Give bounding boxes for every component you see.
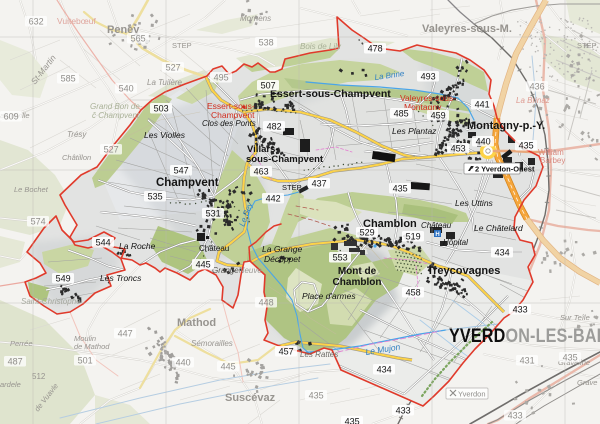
svg-text:Château: Château	[199, 244, 229, 253]
svg-text:Place d'armes: Place d'armes	[302, 291, 356, 301]
svg-text:540: 540	[119, 83, 134, 93]
svg-text:Mont de: Mont de	[338, 266, 377, 277]
svg-text:Château: Château	[421, 221, 452, 230]
svg-text:485: 485	[394, 108, 409, 118]
svg-text:553: 553	[333, 252, 348, 262]
svg-text:Les Uttins: Les Uttins	[455, 198, 494, 208]
svg-text:Les Plantaz: Les Plantaz	[392, 126, 437, 136]
svg-text:431: 431	[520, 355, 535, 365]
svg-text:435: 435	[345, 416, 360, 424]
svg-text:574: 574	[31, 216, 46, 226]
svg-text:447: 447	[118, 328, 133, 338]
svg-text:Sur Teîle: Sur Teîle	[560, 313, 590, 322]
svg-text:Chamblon: Chamblon	[333, 277, 382, 288]
svg-text:Barbey: Barbey	[540, 156, 565, 165]
svg-text:435: 435	[309, 390, 324, 400]
svg-text:437: 437	[312, 178, 327, 188]
svg-text:Le Châtelard: Le Châtelard	[474, 223, 523, 233]
svg-text:463: 463	[254, 166, 269, 176]
svg-text:2 Yverdon-Ouest: 2 Yverdon-Ouest	[475, 165, 535, 174]
svg-text:538: 538	[259, 37, 274, 47]
svg-text:Les Violles: Les Violles	[144, 130, 186, 140]
svg-text:Valeyres-sous-M.: Valeyres-sous-M.	[422, 23, 512, 35]
svg-text:519: 519	[406, 231, 421, 241]
svg-text:Suscévaz: Suscévaz	[225, 392, 276, 404]
svg-text:547: 547	[174, 165, 189, 175]
svg-text:493: 493	[421, 71, 436, 81]
svg-text:ardele: ardele	[0, 380, 21, 389]
svg-text:Essert-sous-Champvent: Essert-sous-Champvent	[270, 88, 391, 100]
svg-text:445: 445	[196, 259, 211, 269]
svg-text:442: 442	[266, 193, 281, 203]
svg-text:La Brinaz: La Brinaz	[516, 96, 550, 105]
svg-text:549: 549	[56, 273, 71, 283]
svg-text:453: 453	[451, 143, 466, 153]
svg-text:565: 565	[131, 33, 146, 43]
svg-text:503: 503	[154, 103, 169, 113]
svg-text:436: 436	[530, 81, 545, 91]
svg-text:STEP: STEP	[172, 41, 192, 50]
svg-text:434: 434	[495, 247, 510, 257]
svg-text:Sémorailles: Sémorailles	[191, 339, 233, 348]
svg-text:478: 478	[368, 43, 383, 53]
svg-text:585: 585	[61, 73, 76, 83]
svg-text:433: 433	[508, 410, 523, 420]
svg-text:445: 445	[221, 361, 236, 371]
svg-text:440: 440	[176, 357, 191, 367]
svg-text:Mornens: Mornens	[240, 14, 271, 23]
svg-text:Décoppet: Décoppet	[264, 254, 301, 264]
svg-text:482: 482	[267, 121, 282, 131]
svg-text:501: 501	[78, 355, 93, 365]
svg-text:Mathod: Mathod	[177, 317, 216, 329]
svg-text:STEP: STEP	[282, 183, 302, 192]
svg-text:448: 448	[259, 297, 274, 307]
svg-text:433: 433	[513, 304, 528, 314]
svg-text:Bois de Lily: Bois de Lily	[300, 42, 342, 51]
svg-text:Clos des Ponts: Clos des Ponts	[202, 119, 256, 128]
svg-text:H: H	[435, 232, 439, 238]
svg-text:La Tuilère: La Tuilère	[147, 78, 183, 87]
svg-text:434: 434	[377, 364, 392, 374]
svg-text:Vuitebœuf: Vuitebœuf	[57, 16, 97, 26]
svg-text:Trésy: Trésy	[67, 130, 87, 139]
svg-text:Châtillon: Châtillon	[62, 153, 91, 162]
svg-text:Saint-Christophe: Saint-Christophe	[21, 297, 81, 306]
svg-text:Perrée: Perrée	[10, 339, 33, 348]
svg-text:544: 544	[96, 237, 111, 247]
svg-text:535: 535	[148, 191, 163, 201]
svg-text:440: 440	[476, 136, 491, 146]
svg-text:Les Troncs: Les Troncs	[100, 273, 142, 283]
svg-text:Grave: Grave	[577, 378, 597, 387]
svg-text:STEP: STEP	[577, 41, 597, 50]
svg-text:Montagny-p.-Y.: Montagny-p.-Y.	[467, 120, 545, 132]
svg-text:La Grange: La Grange	[262, 244, 302, 254]
svg-text:495: 495	[214, 72, 229, 82]
svg-text:512: 512	[32, 372, 46, 381]
svg-text:sous-Champvent: sous-Champvent	[246, 154, 324, 165]
svg-text:435: 435	[563, 352, 578, 362]
svg-text:Grand Bon de-: Grand Bon de-	[90, 102, 143, 111]
svg-text:La Roche: La Roche	[119, 241, 156, 251]
svg-text:435: 435	[519, 140, 534, 150]
svg-text:-Neuve: -Neuve	[236, 266, 262, 275]
svg-text:527: 527	[104, 144, 119, 154]
svg-text:458: 458	[406, 287, 421, 297]
svg-text:Hôpital: Hôpital	[443, 238, 468, 247]
svg-text:529: 529	[360, 227, 375, 237]
svg-text:457: 457	[279, 346, 294, 356]
svg-text:Yverdon: Yverdon	[458, 390, 486, 399]
svg-text:507: 507	[261, 80, 276, 90]
svg-text:YVERDON-LES-BAI: YVERDON-LES-BAI	[449, 325, 600, 347]
svg-text:531: 531	[206, 208, 221, 218]
svg-text:Le Bochet: Le Bochet	[14, 185, 49, 194]
svg-text:527: 527	[166, 62, 181, 72]
svg-text:Champvent: Champvent	[156, 177, 219, 189]
svg-text:459: 459	[431, 110, 446, 120]
svg-text:Treycovagnes: Treycovagnes	[427, 265, 500, 277]
svg-text:435: 435	[393, 183, 408, 193]
svg-text:433: 433	[396, 405, 411, 415]
svg-text:ĉ Champvent: ĉ Champvent	[92, 111, 140, 120]
svg-text:632: 632	[29, 16, 44, 26]
svg-text:Les Rattes: Les Rattes	[300, 350, 338, 359]
svg-text:487: 487	[8, 356, 23, 366]
svg-text:609: 609	[4, 111, 19, 121]
svg-text:de Mathod: de Mathod	[74, 342, 110, 351]
svg-text:441: 441	[475, 99, 490, 109]
